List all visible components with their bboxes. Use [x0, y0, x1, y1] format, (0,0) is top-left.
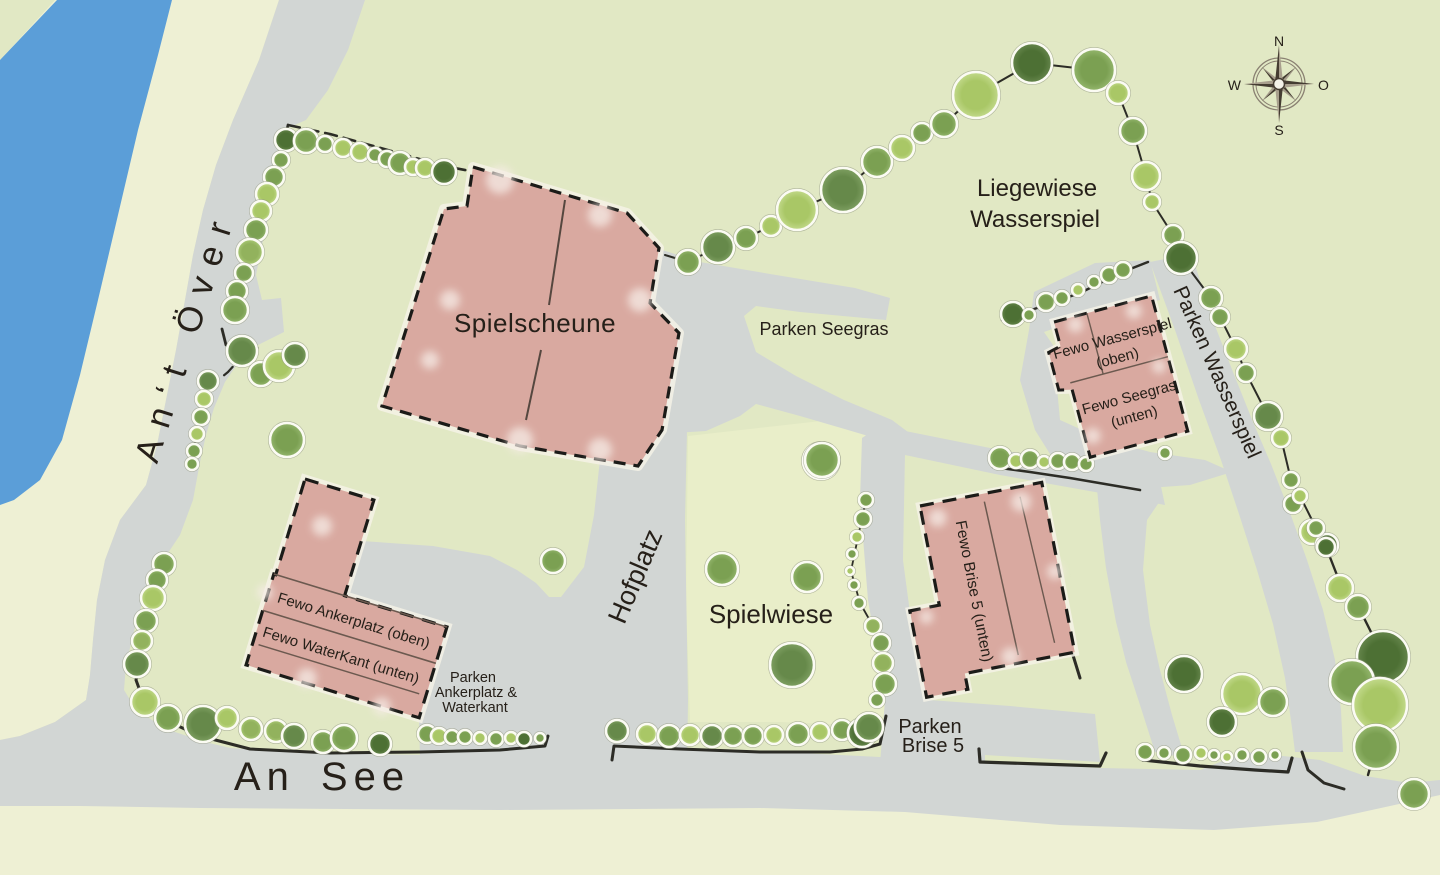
svg-text:Brise 5: Brise 5 — [902, 735, 964, 757]
svg-text:An See: An See — [234, 755, 410, 799]
svg-text:S: S — [1274, 122, 1283, 138]
svg-text:Parken: Parken — [450, 670, 496, 686]
svg-text:W: W — [1228, 77, 1242, 93]
svg-text:Spielscheune: Spielscheune — [454, 308, 616, 338]
svg-text:Waterkant: Waterkant — [442, 700, 508, 716]
svg-text:Wasserspiel: Wasserspiel — [970, 206, 1100, 233]
svg-text:Ankerplatz &: Ankerplatz & — [435, 685, 518, 701]
svg-text:Parken Seegras: Parken Seegras — [759, 319, 888, 339]
svg-text:Spielwiese: Spielwiese — [709, 599, 833, 629]
svg-text:Liegewiese: Liegewiese — [977, 175, 1097, 202]
svg-text:O: O — [1318, 77, 1329, 93]
svg-text:N: N — [1274, 33, 1284, 49]
